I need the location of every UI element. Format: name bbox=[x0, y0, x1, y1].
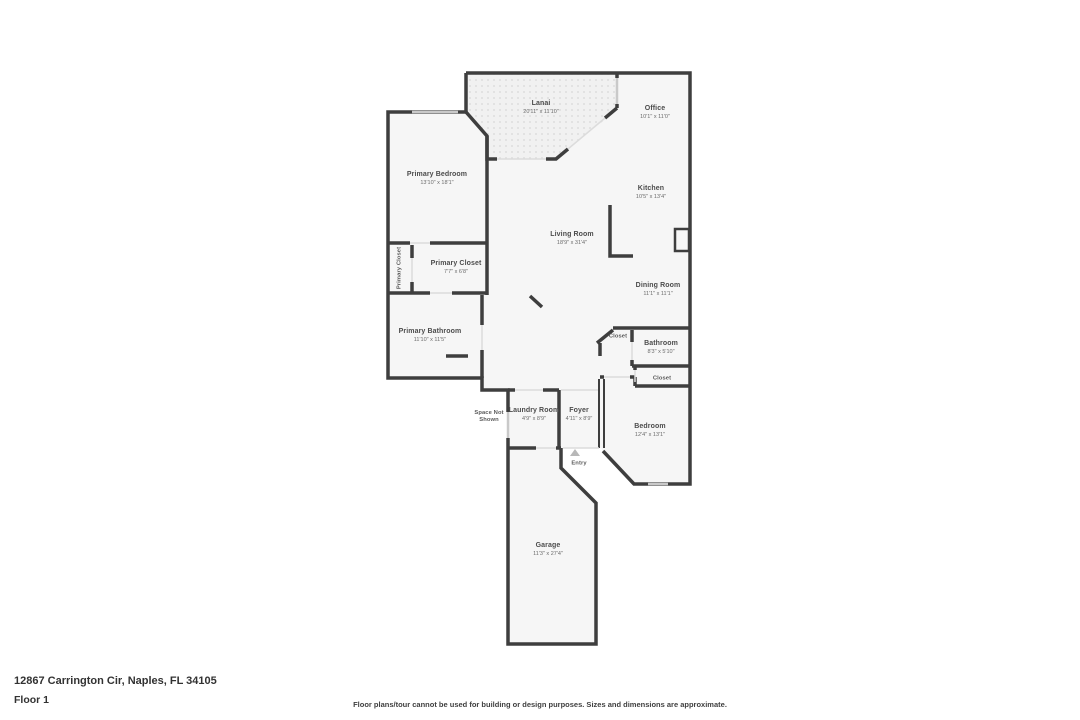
room-name: Entry bbox=[571, 460, 586, 467]
room-name: Primary Bedroom bbox=[407, 171, 467, 180]
room-label-living-room: Living Room18'9" x 31'4" bbox=[550, 231, 594, 247]
room-name: Laundry Room bbox=[509, 407, 560, 416]
room-label-lanai: Lanai20'11" x 11'10" bbox=[523, 100, 558, 116]
room-label-laundry-room: Laundry Room4'9" x 8'9" bbox=[509, 407, 560, 423]
property-address: 12867 Carrington Cir, Naples, FL 34105 bbox=[14, 675, 217, 687]
room-name: Closet bbox=[653, 375, 671, 382]
room-dims: 11'10" x 11'5" bbox=[399, 337, 462, 344]
room-name: Primary Closet bbox=[431, 260, 482, 269]
room-label-space-not-shown: Space Not Shown bbox=[471, 410, 507, 424]
room-label-closet-hall: Closet bbox=[609, 333, 627, 340]
room-name: Kitchen bbox=[636, 185, 666, 194]
room-name: Primary Bathroom bbox=[399, 328, 462, 337]
room-name: Lanai bbox=[523, 100, 558, 109]
room-dims: 4'9" x 8'9" bbox=[509, 416, 560, 423]
disclaimer-text: Floor plans/tour cannot be used for buil… bbox=[0, 700, 1080, 709]
room-name: Office bbox=[640, 105, 670, 114]
room-name: Space Not Shown bbox=[471, 410, 507, 424]
room-label-garage: Garage11'3" x 27'4" bbox=[533, 542, 563, 558]
room-dims: 4'11" x 8'9" bbox=[566, 416, 593, 423]
room-label-primary-closet: Primary Closet7'7" x 6'8" bbox=[431, 260, 482, 276]
room-dims: 10'5" x 13'4" bbox=[636, 194, 666, 201]
room-name: Primary Closet bbox=[396, 247, 403, 289]
room-dims: 12'4" x 13'1" bbox=[634, 432, 665, 439]
room-dims: 11'3" x 27'4" bbox=[533, 551, 563, 558]
room-name: Bathroom bbox=[644, 340, 678, 349]
room-name: Garage bbox=[533, 542, 563, 551]
room-label-bathroom: Bathroom8'3" x 5'10" bbox=[644, 340, 678, 356]
room-labels-layer: Lanai20'11" x 11'10"Office10'1" x 11'0"P… bbox=[0, 0, 1080, 720]
room-label-dining-room: Dining Room11'1" x 11'1" bbox=[636, 282, 681, 298]
room-label-foyer: Foyer4'11" x 8'9" bbox=[566, 407, 593, 423]
room-label-office: Office10'1" x 11'0" bbox=[640, 105, 670, 121]
room-name: Bedroom bbox=[634, 423, 665, 432]
room-dims: 11'1" x 11'1" bbox=[636, 291, 681, 298]
room-dims: 18'9" x 31'4" bbox=[550, 240, 594, 247]
room-dims: 7'7" x 6'8" bbox=[431, 269, 482, 276]
room-name: Dining Room bbox=[636, 282, 681, 291]
room-dims: 13'10" x 18'1" bbox=[407, 180, 467, 187]
room-label-bedroom: Bedroom12'4" x 13'1" bbox=[634, 423, 665, 439]
room-name: Closet bbox=[609, 333, 627, 340]
room-name: Foyer bbox=[566, 407, 593, 416]
room-label-kitchen: Kitchen10'5" x 13'4" bbox=[636, 185, 666, 201]
room-dims: 8'3" x 5'10" bbox=[644, 349, 678, 356]
room-label-primary-closet-vertical: Primary Closet bbox=[396, 247, 403, 289]
room-name: Living Room bbox=[550, 231, 594, 240]
room-label-primary-bathroom: Primary Bathroom11'10" x 11'5" bbox=[399, 328, 462, 344]
floorplan-page: Lanai20'11" x 11'10"Office10'1" x 11'0"P… bbox=[0, 0, 1080, 720]
room-label-primary-bedroom: Primary Bedroom13'10" x 18'1" bbox=[407, 171, 467, 187]
room-label-closet-bedroom: Closet bbox=[653, 375, 671, 382]
room-dims: 20'11" x 11'10" bbox=[523, 109, 558, 116]
room-label-entry: Entry bbox=[571, 460, 586, 467]
room-dims: 10'1" x 11'0" bbox=[640, 114, 670, 121]
